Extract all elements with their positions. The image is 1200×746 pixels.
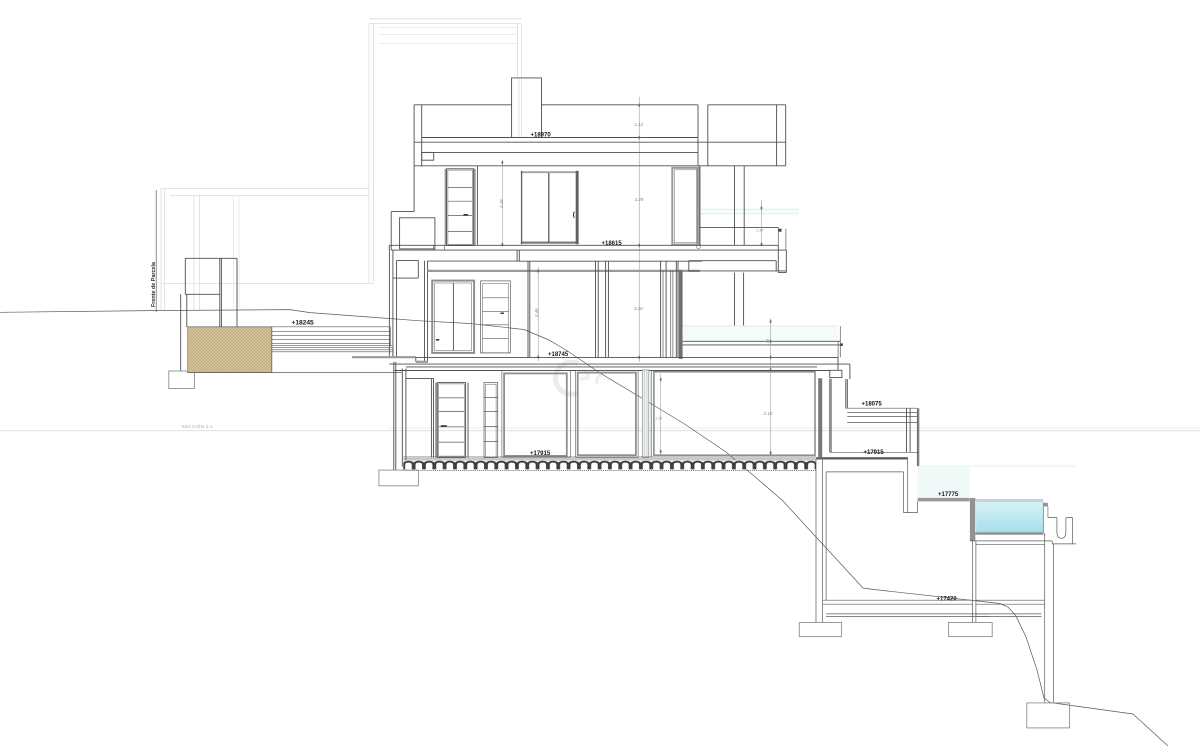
svg-text:+17915: +17915 — [864, 450, 885, 456]
svg-text:+17420: +17420 — [937, 597, 958, 603]
svg-text:1.10: 1.10 — [756, 229, 763, 233]
svg-text:+18075: +18075 — [862, 401, 883, 407]
svg-text:3.20: 3.20 — [634, 306, 643, 311]
svg-text:1.12: 1.12 — [635, 122, 644, 127]
svg-text:+18970: +18970 — [531, 133, 552, 139]
svg-text:+18245: +18245 — [292, 320, 315, 327]
svg-text:+18745: +18745 — [548, 352, 569, 358]
svg-text:SECCIÓN 1-1: SECCIÓN 1-1 — [182, 423, 214, 429]
svg-text:2.46: 2.46 — [499, 199, 504, 209]
svg-text:3.29: 3.29 — [635, 197, 644, 202]
svg-text:+17915: +17915 — [530, 451, 551, 457]
svg-text:2.10: 2.10 — [654, 417, 662, 421]
svg-text:+17775: +17775 — [938, 492, 959, 498]
svg-text:2.10: 2.10 — [763, 411, 773, 416]
svg-text:Frente de Parcela: Frente de Parcela — [151, 261, 157, 307]
svg-text:1.08: 1.08 — [766, 339, 770, 346]
svg-text:2.46: 2.46 — [534, 308, 539, 318]
svg-text:+18615: +18615 — [602, 241, 623, 247]
